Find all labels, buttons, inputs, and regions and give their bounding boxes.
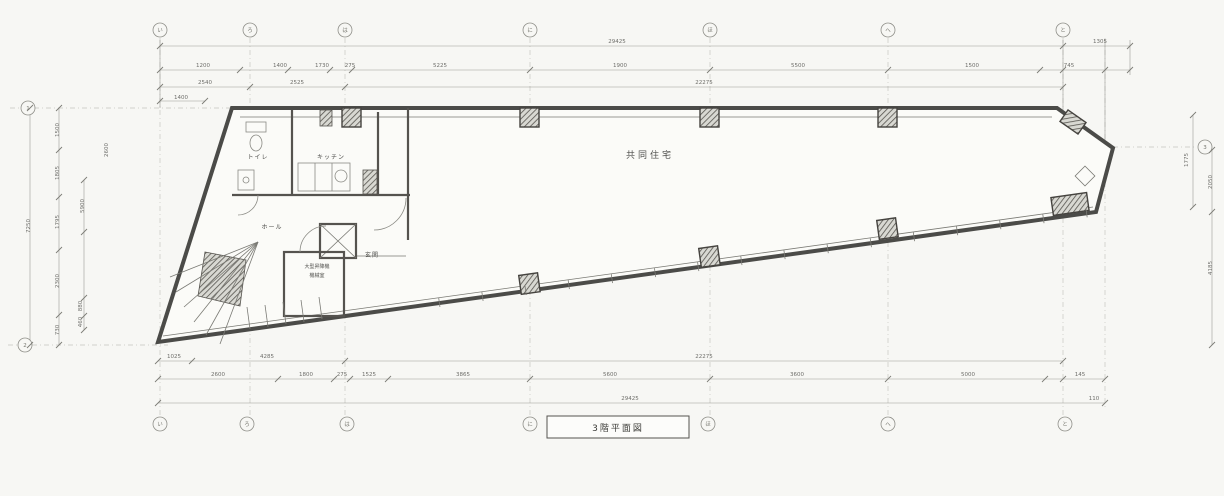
drawing-sheet: 2942513051200140017302755225190055001500…	[0, 0, 1224, 496]
dimension-text: 110	[1089, 396, 1100, 402]
duct	[320, 110, 332, 126]
grid-bubble-label: ほ	[705, 421, 711, 428]
dimension-text: 4185	[1208, 261, 1214, 275]
column	[342, 108, 361, 127]
stair-core	[198, 252, 246, 306]
column	[519, 273, 540, 294]
column	[520, 108, 539, 127]
dimension-text: 1025	[167, 354, 181, 360]
grid-bubble-label: は	[344, 421, 350, 428]
dimension-text: 275	[337, 372, 348, 378]
column	[878, 108, 897, 127]
grid-bubble-label: と	[1062, 421, 1068, 428]
grid-bubble-label: へ	[885, 28, 891, 34]
dimension-text: 7250	[26, 219, 32, 233]
room-label-toilet: トイレ	[247, 154, 268, 161]
duct	[363, 170, 377, 194]
room-label-hall: ホール	[261, 224, 282, 231]
dimension-text: 2050	[1208, 175, 1214, 189]
grid-bubble-label: ろ	[247, 27, 253, 34]
grid-bubble-label: 3	[1203, 145, 1207, 151]
drawing-title: 3階平面図	[592, 423, 644, 434]
floor-plan-canvas: 2942513051200140017302755225190055001500…	[0, 0, 1224, 496]
dimension-text: 22275	[695, 354, 713, 360]
dimension-text: 2525	[290, 80, 304, 86]
building-outline	[158, 108, 1113, 342]
dimension-text: 1500	[55, 123, 61, 137]
dimension-text: 29425	[608, 39, 626, 45]
dimension-text: 1800	[299, 372, 313, 378]
grid-bubble-label: い	[157, 27, 163, 34]
grid-bubble-label: に	[527, 27, 533, 34]
column	[699, 246, 720, 267]
dimension-text: 5600	[603, 372, 617, 378]
grid-bubble-label: 2	[23, 343, 27, 349]
grid-bubble-label: は	[342, 27, 348, 34]
dimension-text: 1805	[55, 166, 61, 180]
grid-bubble-label: へ	[885, 422, 891, 428]
dimension-text: 5000	[961, 372, 975, 378]
dimension-text: 5500	[791, 63, 805, 69]
dimension-text: 1200	[196, 63, 210, 69]
dimension-text: 1775	[1184, 153, 1190, 167]
dimension-text: 3865	[456, 372, 470, 378]
dimension-text: 1400	[273, 63, 287, 69]
dimension-text: 880	[78, 300, 84, 311]
dimension-text: 1795	[55, 215, 61, 229]
dimension-text: 1305	[1093, 39, 1107, 45]
grid-bubble-label: に	[527, 421, 533, 428]
grid-bubble-label: ほ	[707, 27, 713, 34]
dimension-text: 460	[78, 316, 84, 327]
dimension-text: 1400	[174, 95, 188, 101]
dimension-text: 1900	[613, 63, 627, 69]
dimension-text: 145	[1075, 372, 1086, 378]
dimension-text: 730	[55, 324, 61, 335]
dimension-text: 2600	[211, 372, 225, 378]
grid-bubble-label: ろ	[244, 421, 250, 428]
dimension-text: 2540	[198, 80, 212, 86]
dimension-text: 3600	[790, 372, 804, 378]
dimension-text: 1730	[315, 63, 329, 69]
dimension-text: 5225	[433, 63, 447, 69]
title-block: 3階平面図	[547, 416, 689, 438]
column	[700, 108, 719, 127]
grid-bubble-label: い	[157, 421, 163, 428]
dimension-text: 4285	[260, 354, 274, 360]
room-label-elevator-line1: 大型昇降機	[304, 263, 329, 270]
room-label-kitchen: キッチン	[317, 154, 345, 161]
grid-bubble-label: と	[1060, 27, 1066, 34]
dimension-text: 1500	[965, 63, 979, 69]
dimension-text: 5900	[80, 199, 86, 213]
room-label-entrance: 玄関	[365, 251, 379, 259]
dimension-text: 29425	[621, 396, 639, 402]
dimension-text: 22275	[695, 80, 713, 86]
dimension-text: 2600	[104, 143, 110, 157]
dimension-text: 1525	[362, 372, 376, 378]
dimension-text: 2300	[55, 274, 61, 288]
column	[877, 218, 898, 239]
room-label-residence: 共同住宅	[626, 149, 674, 161]
room-label-elevator-line2: 機械室	[309, 272, 324, 279]
